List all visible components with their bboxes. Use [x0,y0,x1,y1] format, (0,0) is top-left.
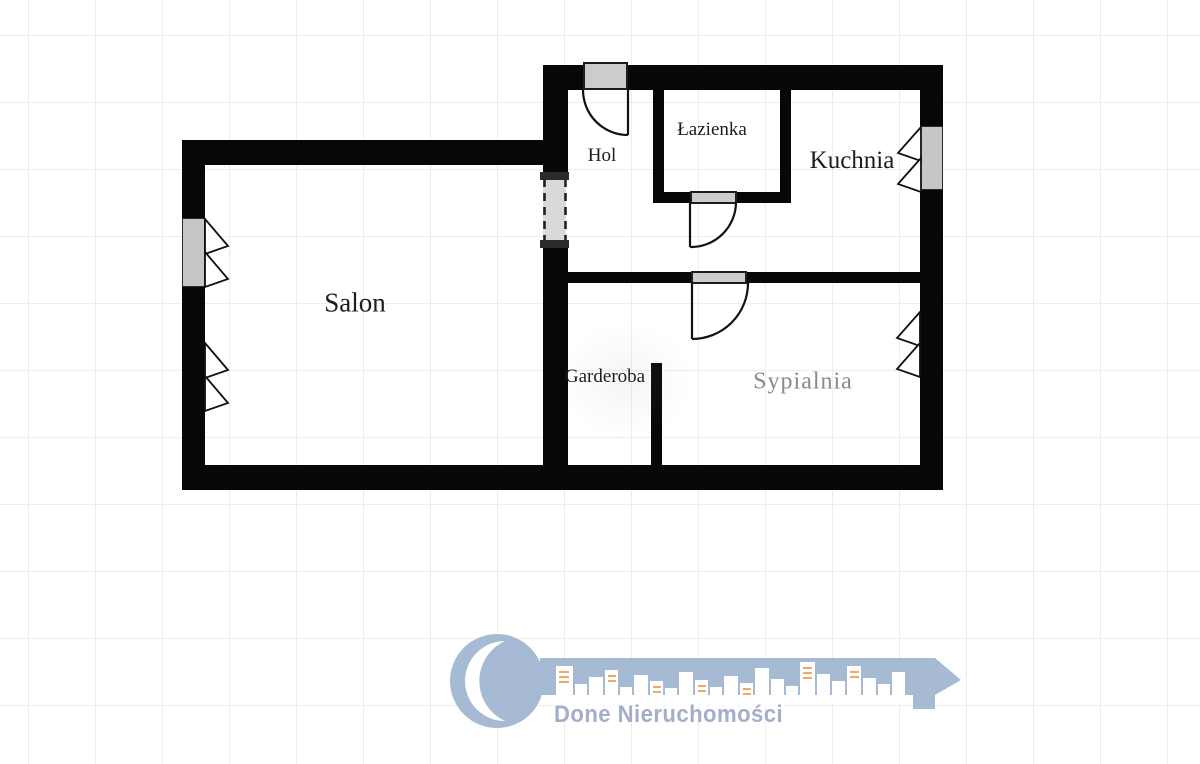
salon-window-top-icon [205,219,228,287]
room-label-kuchnia: Kuchnia [810,147,895,175]
entrance-door-swing-icon [583,90,628,135]
room-label-hol: Hol [588,145,617,167]
crescent-icon [465,641,505,721]
entrance-door-frame [583,62,628,90]
bathroom-door-swing-icon [690,202,736,247]
room-label-garderoba: Garderoba [565,366,645,388]
kitchen-window-icon [898,127,921,192]
salon-window-glass [182,218,205,287]
bathroom-wall-right [780,90,791,203]
room-label-sypialnia: Sypialnia [753,369,853,396]
salon-passage-cap-bottom [540,240,569,248]
outer-wall-left [182,140,205,490]
bedroom-window-icon [897,312,920,377]
room-label-salon: Salon [324,288,386,319]
kitchen-window-glass [920,126,943,190]
floor-plan-canvas: Hol Łazienka Kuchnia Salon Garderoba Syp… [0,0,1200,764]
center-wall-upper [543,65,568,174]
bathroom-wall-left [653,90,664,203]
room-label-lazienka: Łazienka [677,119,747,141]
salon-passage-cap-top [540,172,569,180]
city-skyline-icon [556,662,905,706]
salon-top-wall [182,140,567,165]
salon-passage-opening [543,180,566,240]
bathroom-door-frame [690,191,737,204]
bedroom-door-swing-icon [692,283,748,339]
bedroom-door-frame [691,271,747,284]
skyline-window-lights [559,667,859,695]
agency-name: Done Nieruchomości [554,701,783,729]
salon-window-bottom-icon [205,343,228,411]
